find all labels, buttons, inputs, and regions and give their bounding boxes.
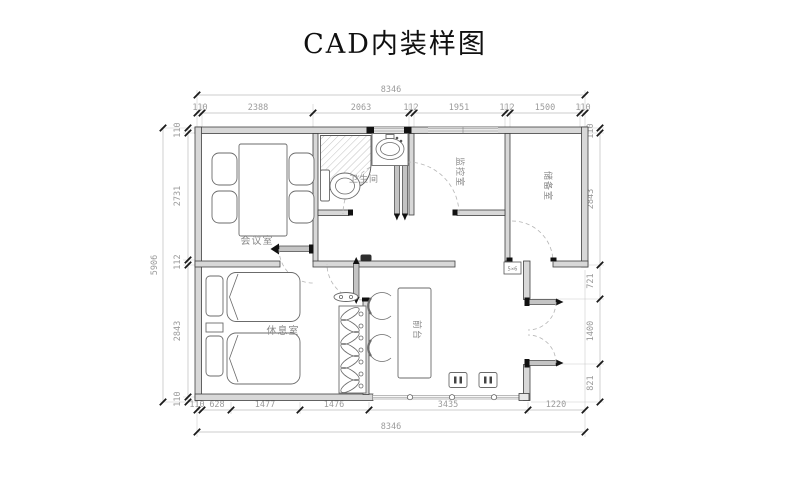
entry-double-door xyxy=(525,298,564,368)
window-pier-right xyxy=(404,127,412,134)
pillow xyxy=(206,336,223,376)
dim-left-1: 2731 xyxy=(173,186,183,206)
floor-outlet xyxy=(334,293,358,302)
chair xyxy=(212,153,237,185)
dim-bottom-5: 1220 xyxy=(546,400,566,410)
bed xyxy=(206,333,300,384)
dim-right-3: 1400 xyxy=(586,321,596,341)
dim-bottom-2: 1477 xyxy=(255,400,275,410)
bed xyxy=(206,273,300,322)
window-storefront xyxy=(373,394,529,401)
switch-box-label: 5×6 xyxy=(508,267,518,273)
dim-top-4: 1951 xyxy=(449,103,469,113)
floor-socket xyxy=(479,373,497,388)
shoe-rack xyxy=(339,305,366,395)
room-label-reception-desk: 前台 xyxy=(411,320,423,340)
nightstand xyxy=(206,323,223,332)
mullion xyxy=(449,395,454,400)
dim-right-2: 721 xyxy=(586,273,596,288)
corner-post xyxy=(519,394,529,401)
room-label-monitoring: 监控室 xyxy=(454,157,466,187)
dim-left-4: 110 xyxy=(173,391,183,406)
chair xyxy=(368,335,391,362)
wall-right-lower-a xyxy=(524,261,531,300)
dim-bottom-3: 1476 xyxy=(324,400,344,410)
sink xyxy=(372,134,408,166)
dim-top-overall: 8346 xyxy=(381,85,401,95)
wall-monitor-storage xyxy=(505,134,510,262)
dim-left-3: 2843 xyxy=(173,321,183,341)
chair xyxy=(212,191,237,223)
wall-right-upper xyxy=(582,127,589,267)
conference-table xyxy=(239,144,287,236)
tap xyxy=(396,137,399,140)
room-label-meeting: 会议室 xyxy=(241,234,274,247)
dim-left-2: 112 xyxy=(173,254,183,269)
dim-top-3: 112 xyxy=(403,103,418,113)
dim-top-2: 2063 xyxy=(351,103,371,113)
mullion xyxy=(491,395,496,400)
dim-top-6: 1500 xyxy=(535,103,555,113)
window-pier-left xyxy=(367,127,375,134)
chair xyxy=(289,191,314,223)
wall-bath-bottom xyxy=(318,210,349,216)
dim-top-7: 110 xyxy=(575,103,590,113)
wall-mid-center xyxy=(313,261,455,267)
floor-socket xyxy=(449,373,467,388)
wall-monitor-bottom xyxy=(457,210,505,216)
dim-top-0: 110 xyxy=(192,103,207,113)
switch-box: 5×6 xyxy=(504,262,521,274)
dim-bottom-overall: 8346 xyxy=(381,422,401,432)
dim-bottom-1: 628 xyxy=(209,400,224,410)
window-monitoring xyxy=(428,127,498,133)
dim-top-1: 2388 xyxy=(248,103,268,113)
chair xyxy=(289,153,314,185)
dim-right-4: 821 xyxy=(586,375,596,390)
meeting-room-furniture xyxy=(212,144,314,236)
dim-bottom-0: 110 xyxy=(189,400,204,410)
chair xyxy=(368,293,391,320)
mullion xyxy=(407,395,412,400)
storage-room-door xyxy=(507,221,557,262)
room-label-storage: 储备室 xyxy=(542,171,554,201)
wall-bath-monitor xyxy=(409,134,414,216)
wall-mid-west xyxy=(195,261,280,267)
room-label-bathroom: 卫生间 xyxy=(349,173,379,185)
dim-left-overall: 5906 xyxy=(150,255,160,275)
wall-storage-bottom-b xyxy=(553,261,588,267)
floor-plan-drawing: 8346 110 2388 2063 112 1951 112 1500 110… xyxy=(0,0,790,500)
wall-corner-post xyxy=(361,255,372,262)
dim-left-0: 110 xyxy=(173,122,183,137)
tap xyxy=(400,140,403,143)
dim-bottom-4: 3435 xyxy=(438,400,458,410)
room-label-rest: 休息室 xyxy=(267,324,300,337)
dim-top-5: 112 xyxy=(499,103,514,113)
wall-bottom-left xyxy=(195,394,373,401)
window-bathroom xyxy=(367,127,412,134)
pillow xyxy=(206,276,223,316)
